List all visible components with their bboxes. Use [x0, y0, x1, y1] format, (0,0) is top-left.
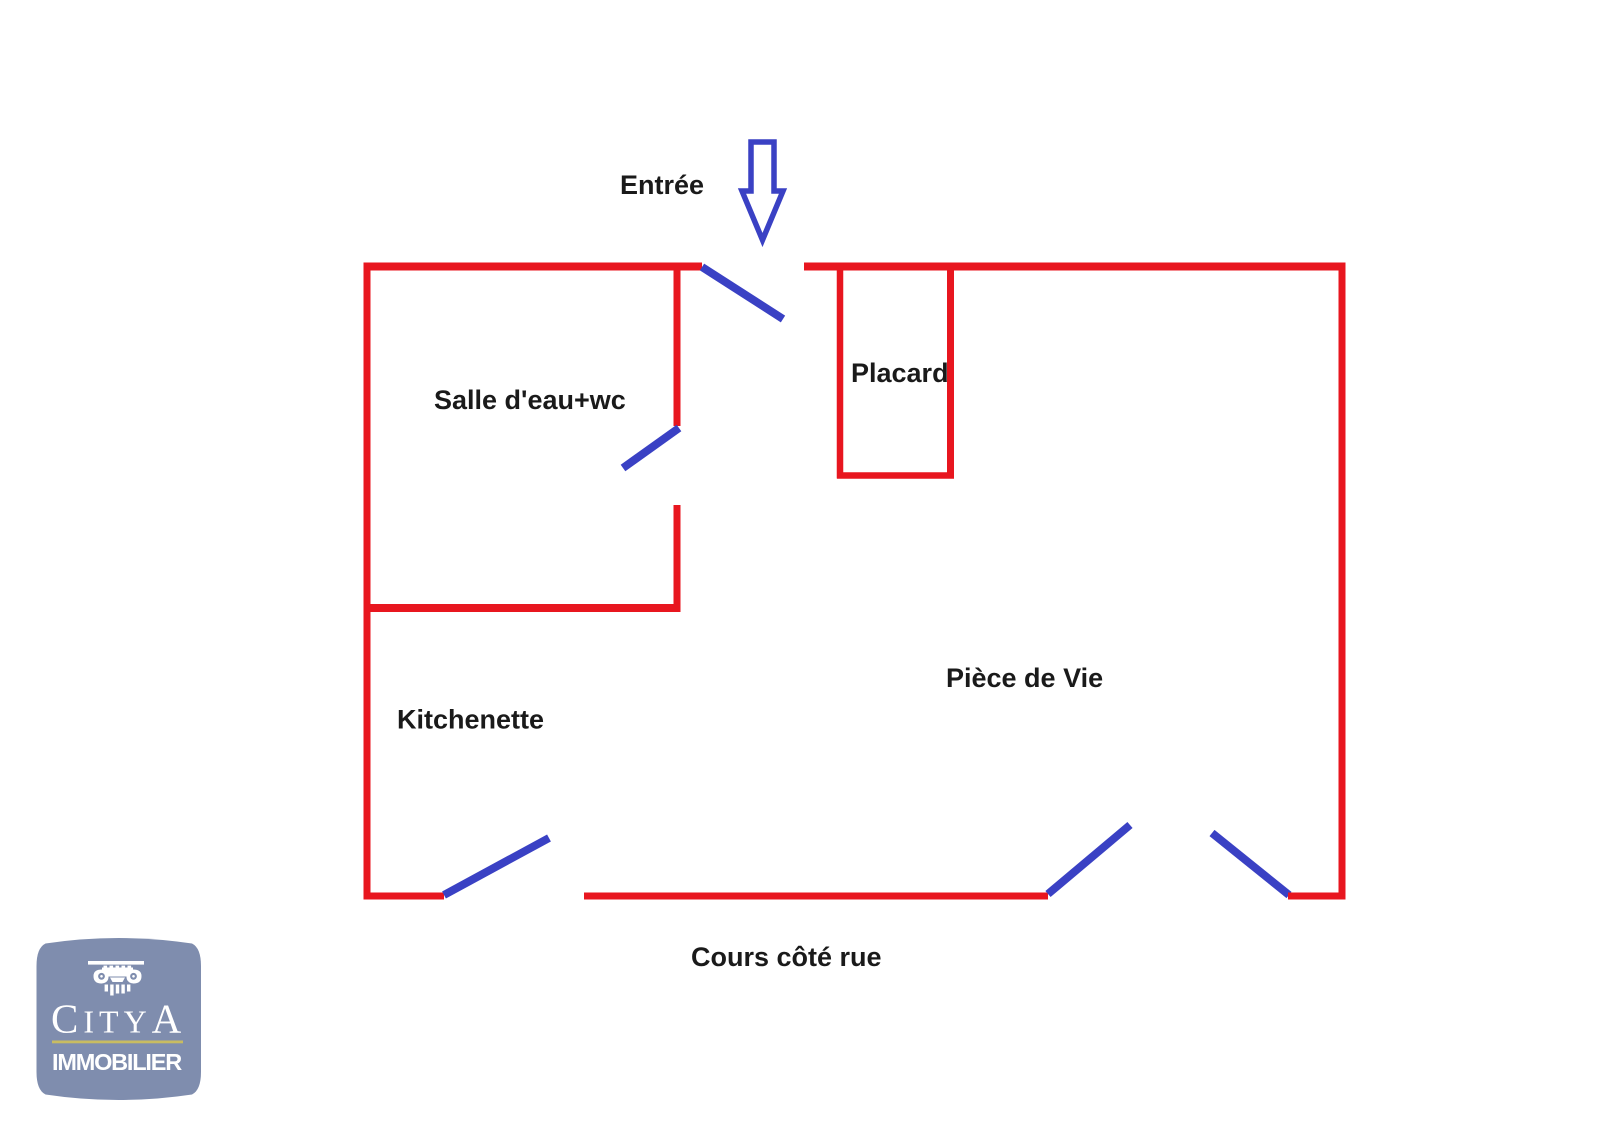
svg-text:Kitchenette: Kitchenette: [397, 705, 544, 735]
svg-text:Cours côté rue: Cours côté rue: [691, 942, 882, 972]
svg-text:Salle d'eau+wc: Salle d'eau+wc: [434, 385, 626, 415]
svg-text:IMMOBILIER: IMMOBILIER: [52, 1049, 182, 1075]
svg-text:Pièce de Vie: Pièce de Vie: [946, 663, 1103, 693]
svg-text:Placard: Placard: [851, 358, 949, 388]
svg-text:Entrée: Entrée: [620, 170, 704, 200]
